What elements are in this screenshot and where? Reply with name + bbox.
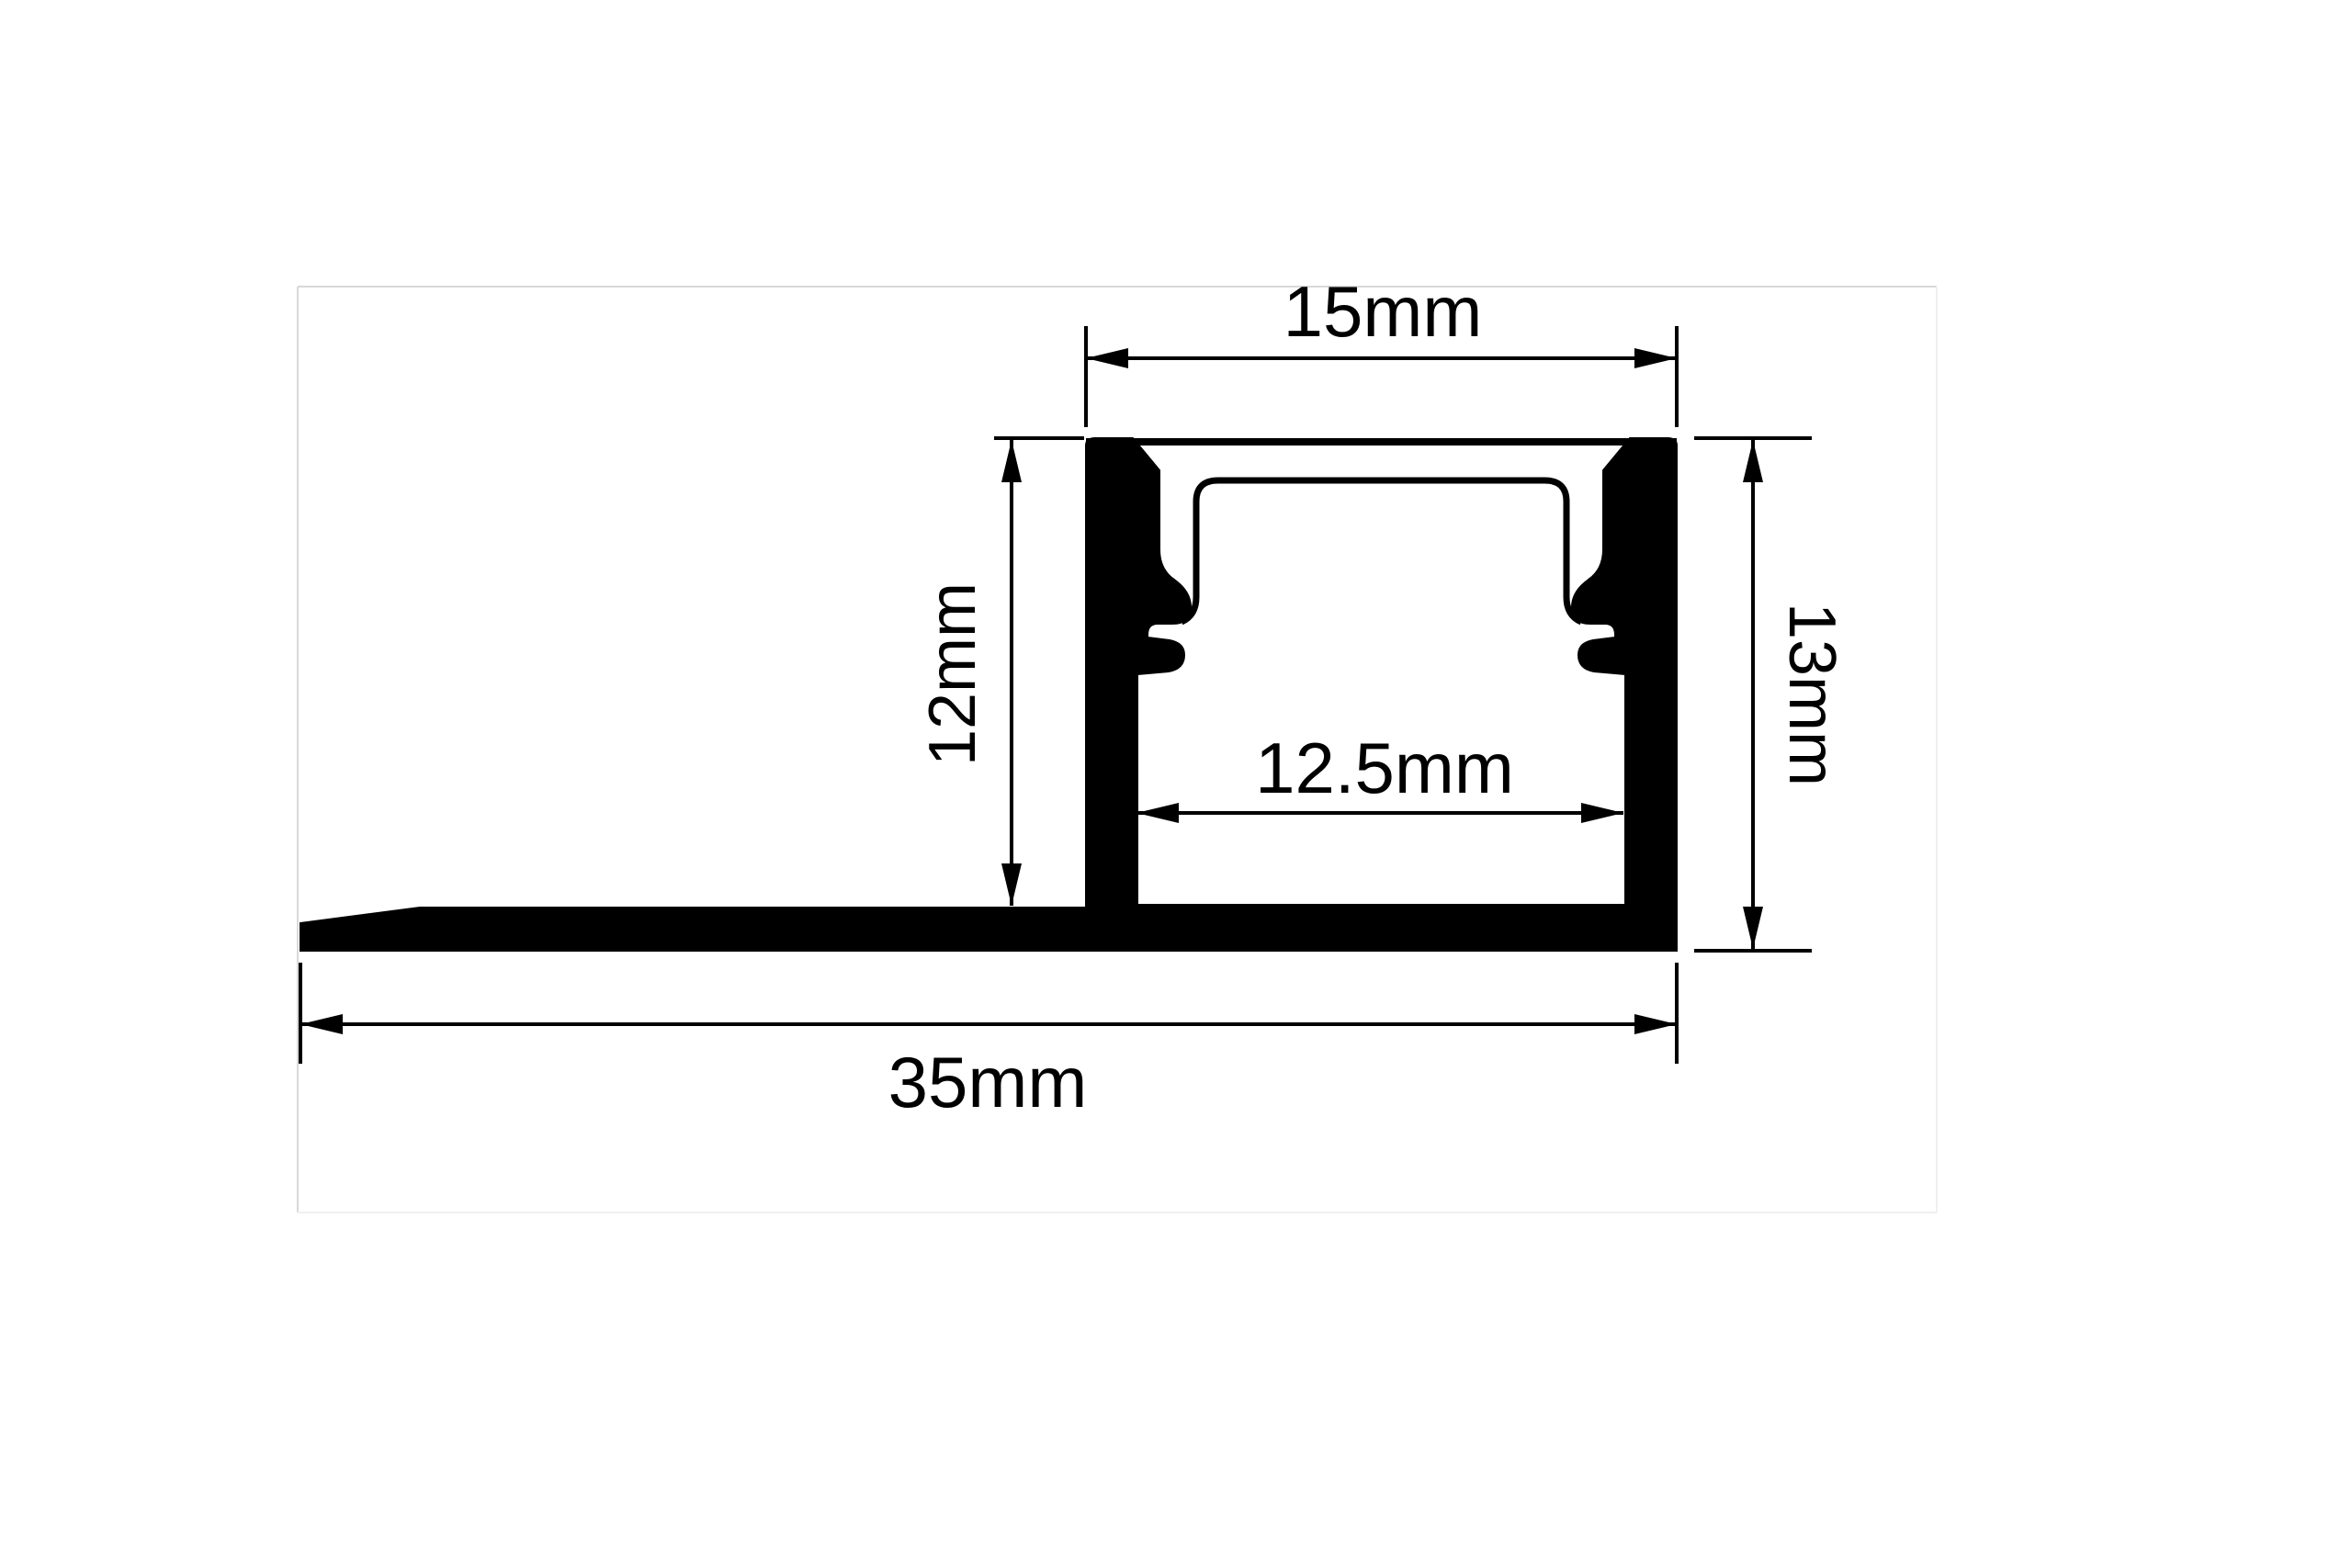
arrow-up-icon xyxy=(1743,440,1763,482)
arrow-left-icon xyxy=(300,1014,343,1034)
dim-label-total-width: 35mm xyxy=(888,1042,1088,1122)
arrow-right-icon xyxy=(1634,348,1677,368)
profile-cross-section-diagram: 15mm 12mm 13mm 12.5mm xyxy=(0,0,2352,1568)
dim-left-height xyxy=(994,438,1084,906)
arrow-left-icon xyxy=(1086,348,1128,368)
arrow-down-icon xyxy=(1743,907,1763,949)
dim-label-inner-width: 12.5mm xyxy=(1255,728,1514,808)
top-web-line xyxy=(1086,438,1677,446)
diffuser-seat-outline xyxy=(1182,480,1581,622)
arrow-left-icon xyxy=(1136,803,1179,823)
arrow-up-icon xyxy=(1001,440,1022,482)
dim-label-right-height: 13mm xyxy=(1775,603,1849,786)
dim-label-top-width: 15mm xyxy=(1283,271,1483,352)
arrow-down-icon xyxy=(1001,863,1022,906)
dim-label-left-height: 12mm xyxy=(916,582,989,766)
arrow-right-icon xyxy=(1581,803,1623,823)
drawing-page: 15mm 12mm 13mm 12.5mm xyxy=(0,0,2352,1568)
arrow-right-icon xyxy=(1634,1014,1677,1034)
